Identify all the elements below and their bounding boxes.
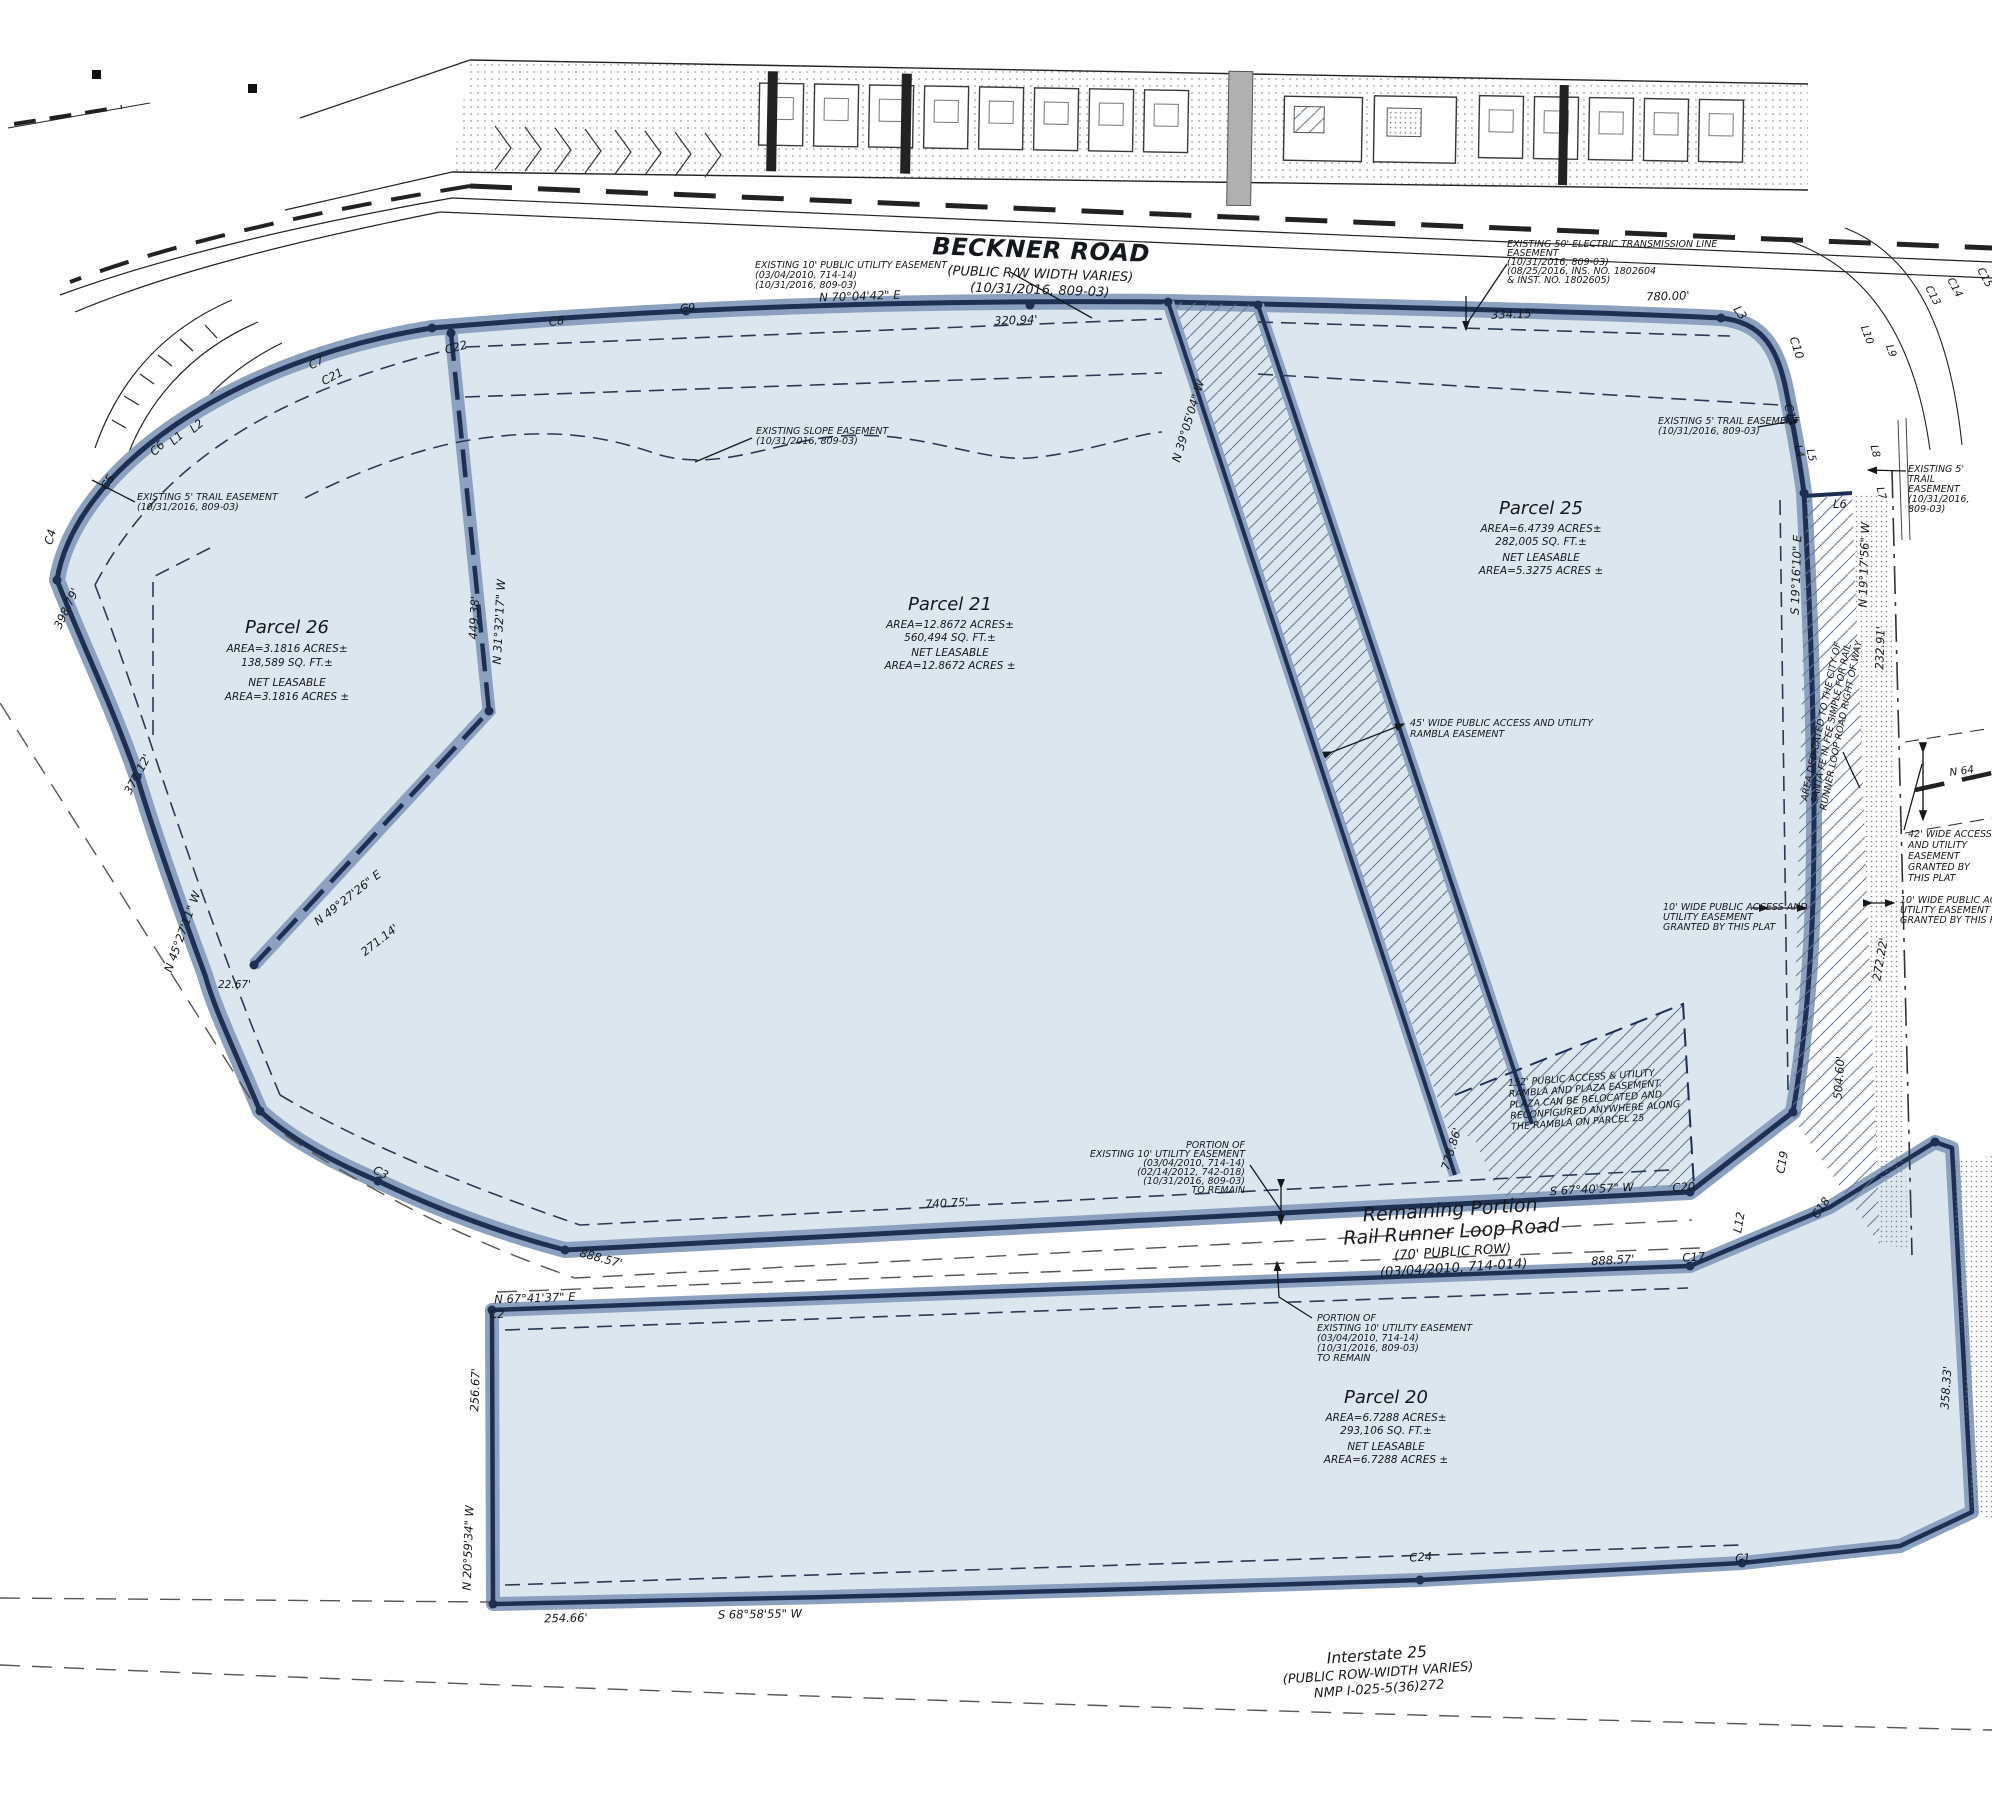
dim-256-67: 256.67' — [467, 1368, 483, 1412]
label-c17: C17 — [1682, 1249, 1706, 1264]
note-line: & INST. NO. 1802605) — [1507, 275, 1610, 286]
parcel-20-net1: NET LEASABLE — [1347, 1441, 1425, 1453]
label-c4: C4 — [41, 528, 58, 546]
note-line: EASEMENT — [1908, 851, 1961, 862]
utility-box — [248, 84, 257, 93]
label-l6: L6 — [1833, 497, 1847, 511]
bearing-s1916: S 19°16'10" E — [1788, 534, 1805, 615]
subdivision-strip — [8, 60, 1808, 214]
label-c20: C20 — [1672, 1179, 1695, 1194]
parcel-26-sqft: 138,589 SQ. FT.± — [241, 657, 333, 669]
parcel-25-title: Parcel 25 — [1499, 498, 1583, 519]
beckner-road-title: BECKNER ROAD (PUBLIC R/W WIDTH VARIES) (… — [932, 232, 1150, 300]
plat-sheet: BECKNER ROAD (PUBLIC R/W WIDTH VARIES) (… — [0, 0, 1992, 1804]
label-c8: C8 — [548, 313, 565, 329]
dim-320-94: 320.94' — [994, 312, 1038, 328]
dim-334-15: 334.15' — [1491, 306, 1535, 322]
note-line: TO REMAIN — [1317, 1353, 1371, 1364]
dim-888-57-b: 888.57' — [1591, 1252, 1635, 1268]
note-line: GRANTED BY THIS PLAT — [1900, 915, 1992, 926]
note-line: 809-03) — [1908, 504, 1945, 515]
label-c14: C14 — [1944, 276, 1964, 300]
parcel-26-title: Parcel 26 — [245, 617, 329, 638]
parcel-20-sqft: 293,106 SQ. FT.± — [1340, 1425, 1432, 1437]
note-line: RAMBLA EASEMENT — [1410, 729, 1505, 740]
dim-740-75: 740.75' — [925, 1195, 969, 1211]
utility-box — [92, 70, 101, 79]
bearing-n70: N 70°04'42" E — [819, 288, 901, 305]
note-line: GRANTED BY — [1908, 862, 1971, 873]
note-line: THIS PLAT — [1908, 873, 1957, 884]
beckner-road-name: BECKNER ROAD — [932, 232, 1150, 268]
parcel-20-net2: AREA=6.7288 ACRES ± — [1323, 1454, 1448, 1466]
parcel-25-sqft: 282,005 SQ. FT.± — [1495, 536, 1587, 548]
dim-22-67: 22.67' — [218, 979, 251, 991]
parcel-21-title: Parcel 21 — [908, 594, 992, 615]
label-l8: L8 — [1868, 444, 1883, 459]
note-line: (10/31/2016, 809-03) — [1658, 426, 1760, 437]
parcel-26-net2: AREA=3.1816 ACRES ± — [224, 691, 349, 703]
label-l9: L9 — [1883, 343, 1899, 359]
parcel-21-area: AREA=12.8672 ACRES± — [885, 619, 1014, 631]
parcel-20-area: AREA=6.7288 ACRES± — [1324, 1412, 1446, 1424]
note-line: AND UTILITY — [1907, 840, 1968, 851]
note-line: (10/31/2016, 809-03) — [756, 436, 858, 447]
note-utility-easement-top: EXISTING 10' PUBLIC UTILITY EASEMENT (03… — [755, 260, 948, 291]
note-access42: 42' WIDE ACCESS AND UTILITY EASEMENT GRA… — [1907, 829, 1992, 884]
dim-254-66: 254.66' — [544, 1611, 588, 1626]
note-line: GRANTED BY THIS PLAT — [1663, 922, 1777, 933]
bearing-n2059: N 20°59'34" W — [460, 1504, 477, 1590]
bearing-s6858: S 68°58'55" W — [718, 1606, 803, 1621]
label-l12: L12 — [1730, 1211, 1747, 1234]
note-electric-easement: EXISTING 50' ELECTRIC TRANSMISSION LINE … — [1507, 239, 1717, 286]
note-trail-easement-farright: EXISTING 5' TRAIL EASEMENT (10/31/2016, … — [1908, 464, 1969, 515]
parcel-26-net1: NET LEASABLE — [248, 677, 326, 689]
parcel-26-area: AREA=3.1816 ACRES± — [225, 643, 347, 655]
label-c24: C24 — [1409, 1549, 1432, 1564]
parcel-21-sqft: 560,494 SQ. FT.± — [904, 632, 996, 644]
parcel-25-area: AREA=6.4739 ACRES± — [1479, 523, 1601, 535]
note-access10-right: 10' WIDE PUBLIC ACCESS UTILITY EASEMENT … — [1900, 895, 1992, 926]
note-line: 45' WIDE PUBLIC ACCESS AND UTILITY — [1410, 718, 1594, 729]
dim-232-91: 232.91' — [1872, 626, 1888, 670]
label-c10: C10 — [1787, 335, 1807, 361]
bearing-n6741: N 67°41'37" E — [494, 1290, 576, 1307]
note-line: TO REMAIN — [1191, 1185, 1245, 1196]
note-line: 42' WIDE ACCESS — [1908, 829, 1992, 840]
dim-780-00: 780.00' — [1646, 288, 1690, 304]
label-c2: C2 — [489, 1307, 505, 1322]
dim-449-38: 449.38' — [466, 596, 482, 640]
parcel-21-net2: AREA=12.8672 ACRES ± — [883, 660, 1015, 672]
plat-drawing: BECKNER ROAD (PUBLIC R/W WIDTH VARIES) (… — [0, 0, 1992, 1804]
parcel-20-title: Parcel 20 — [1344, 1387, 1428, 1408]
label-c9: C9 — [679, 300, 696, 315]
parcel-21-net1: NET LEASABLE — [911, 647, 989, 659]
label-c1: C1 — [1735, 1551, 1751, 1566]
label-c19: C19 — [1773, 1150, 1791, 1175]
parcel-25-net2: AREA=5.3275 ACRES ± — [1478, 565, 1603, 577]
interstate-title: Interstate 25 (PUBLIC ROW-WIDTH VARIES) … — [1281, 1639, 1475, 1703]
label-l10: L10 — [1858, 324, 1876, 346]
note-line: (10/31/2016, 809-03) — [137, 502, 239, 513]
street-stub — [1227, 71, 1253, 205]
parcel-25-net1: NET LEASABLE — [1502, 552, 1580, 564]
